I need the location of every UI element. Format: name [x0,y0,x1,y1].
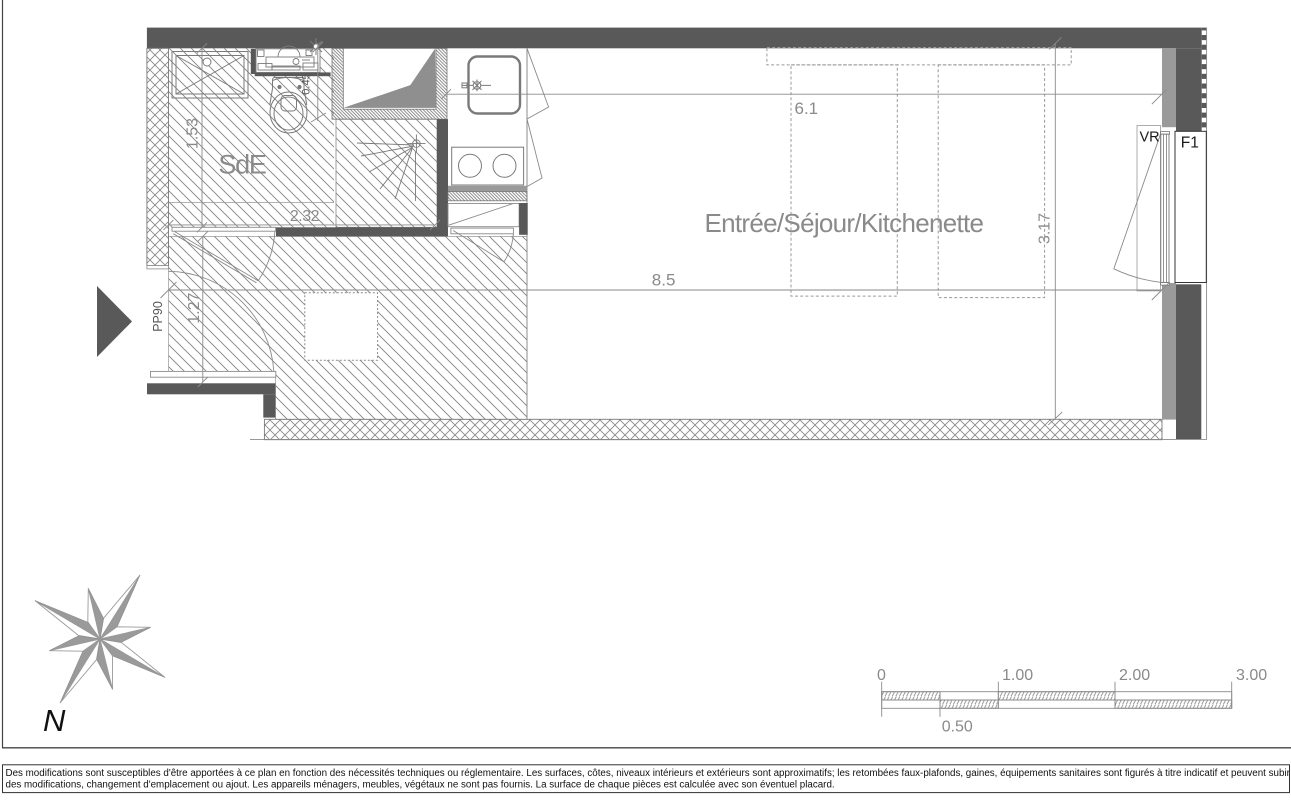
svg-text:0: 0 [877,667,886,684]
svg-text:PP90: PP90 [151,301,165,332]
svg-text:0.50: 0.50 [942,719,973,736]
svg-text:Des modifications sont suscept: Des modifications sont susceptibles d'êt… [6,768,1291,779]
svg-text:2.00: 2.00 [1119,667,1150,684]
svg-text:VR: VR [1140,130,1160,146]
svg-text:6.1: 6.1 [795,99,819,118]
svg-text:3.17: 3.17 [1036,213,1053,244]
svg-text:8.5: 8.5 [652,271,676,290]
svg-text:des modifications, changement: des modifications, changement d'emplacem… [6,779,835,790]
svg-text:2.32: 2.32 [290,208,320,225]
svg-text:Entrée/Séjour/Kitchenette: Entrée/Séjour/Kitchenette [705,208,984,238]
svg-text:1.53: 1.53 [185,118,202,149]
svg-text:3.00: 3.00 [1236,667,1267,684]
svg-text:F1: F1 [1181,135,1199,152]
svg-text:N: N [43,703,66,738]
svg-text:1.27: 1.27 [186,293,203,324]
svg-text:0.45: 0.45 [301,73,313,94]
svg-text:SdE: SdE [218,150,265,180]
svg-text:1.00: 1.00 [1002,667,1033,684]
